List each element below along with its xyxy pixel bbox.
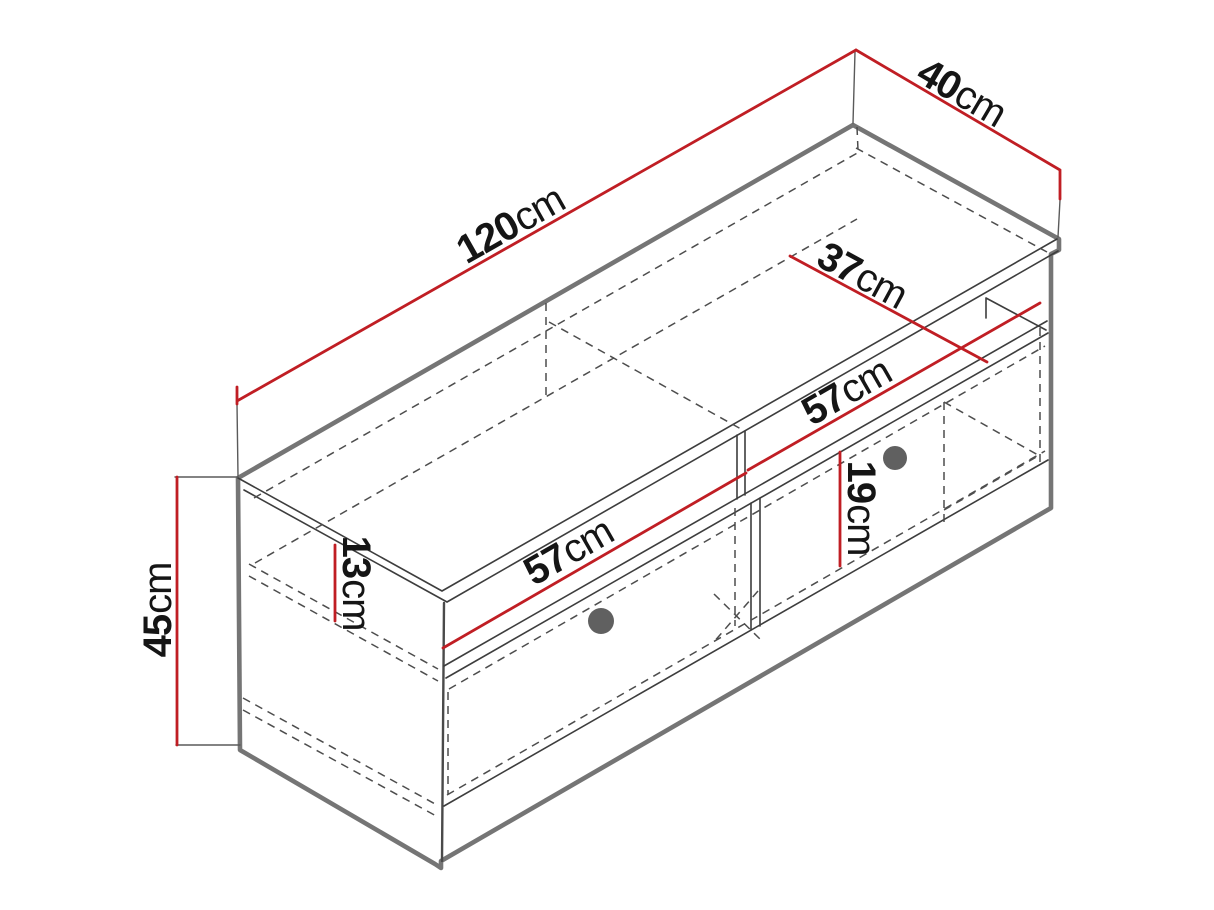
cabinet-silhouette: [238, 125, 1059, 868]
drawer-knob-right: [883, 446, 907, 470]
dim-width-label: 120cm: [449, 177, 572, 272]
diagram-canvas: 120cm 40cm 45cm 37cm 57cm 57cm 13cm 19cm: [0, 0, 1214, 910]
drawer-knob-left: [588, 608, 614, 634]
dim-drawer-height-label: 19cm: [839, 461, 883, 556]
dim-height-label: 45cm: [136, 563, 180, 658]
furniture-dimension-diagram: 120cm 40cm 45cm 37cm 57cm 57cm 13cm 19cm: [0, 0, 1214, 910]
dim-depth-label: 40cm: [910, 50, 1014, 136]
dim-niche-height-label: 13cm: [334, 536, 378, 631]
